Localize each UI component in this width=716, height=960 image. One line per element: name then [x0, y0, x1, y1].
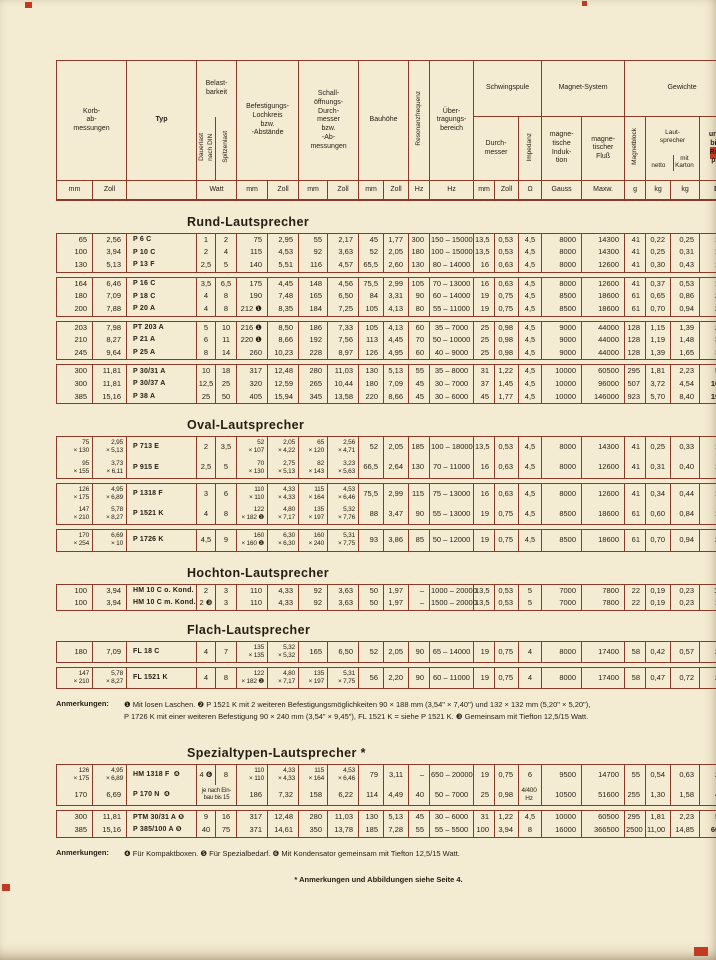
- table-cell: –: [409, 597, 430, 610]
- print-mark: [25, 2, 32, 8]
- table-cell: 17400: [582, 668, 625, 689]
- table-cell: 385: [57, 391, 93, 404]
- table-cell: 116: [299, 259, 328, 272]
- table-cell: 4,5: [519, 378, 542, 391]
- table-cell: 1,22: [495, 811, 519, 824]
- table-cell: 55: [409, 365, 430, 378]
- table-cell: 4,45: [384, 334, 409, 347]
- table-cell: 18600: [582, 303, 625, 316]
- cell-typ: P 1521 K: [127, 504, 197, 525]
- table-cell: 3,63: [328, 584, 359, 597]
- spec-rows-group: 652,56P 6 C12752,95552,17451,77300150 – …: [56, 233, 716, 273]
- table-cell: 110 × 110: [237, 764, 268, 785]
- table-cell: 8: [197, 347, 216, 360]
- table-cell: 0,60: [646, 504, 671, 525]
- table-cell: –: [409, 764, 430, 785]
- unit-cell: Hz: [409, 181, 430, 200]
- table-row: 1305,13P 13 F2,551405,511164,5765,52,601…: [57, 259, 716, 272]
- col-header-impedanz: Impedanz: [519, 117, 542, 181]
- table-cell: 2,56 × 4,71: [328, 437, 359, 458]
- table-cell: 16: [474, 483, 495, 504]
- table-cell: 18600: [582, 530, 625, 551]
- cell-typ: PT 203 A: [127, 321, 197, 334]
- table-cell: 16: [474, 458, 495, 479]
- table-cell: 22,—: [700, 303, 716, 316]
- table-cell: 190: [237, 290, 268, 303]
- spec-rows-group: 75 × 1302,95 × 5,13P 713 E23,552 × 1072,…: [56, 436, 716, 479]
- cell-typ: HM 1318 F ❹: [127, 764, 197, 785]
- table-cell: 300: [57, 378, 93, 391]
- spec-rows-group: 126 × 1754,95 × 6,89P 1318 F36110 × 1104…: [56, 483, 716, 526]
- table-cell: 8000: [542, 246, 582, 259]
- table-row: 2459,64P 25 A81426010,232288,971264,9560…: [57, 347, 716, 360]
- table-cell: 30 – 6000: [430, 811, 474, 824]
- table-cell: 19: [474, 303, 495, 316]
- unit-cell: Zoll: [384, 181, 409, 200]
- table-cell: 146000: [582, 391, 625, 404]
- table-cell: 150 – 15000: [430, 233, 474, 246]
- table-cell: 210: [57, 334, 93, 347]
- table-cell: 29,—: [700, 321, 716, 334]
- table-cell: 50: [359, 584, 384, 597]
- table-row: 1646,46P 16 C3,56,51754,451484,5675,52,9…: [57, 277, 716, 290]
- table-cell: 58,—: [700, 811, 716, 824]
- table-cell: 164: [57, 277, 93, 290]
- table-cell: 5,13: [384, 811, 409, 824]
- table-cell: 75: [216, 824, 237, 837]
- notes-label: Anmerkungen:: [56, 699, 124, 722]
- table-cell: 6: [197, 334, 216, 347]
- table-cell: 52: [359, 246, 384, 259]
- table-cell: 0,98: [495, 785, 519, 806]
- cell-typ: P 915 E: [127, 458, 197, 479]
- table-cell: 50 – 10000: [430, 334, 474, 347]
- table-row: 1807,09FL 18 C47135 × 1355,32 × 5,321656…: [57, 641, 716, 662]
- table-cell: 7,33: [328, 321, 359, 334]
- cell-typ: P 713 E: [127, 437, 197, 458]
- table-cell: 4,49: [384, 785, 409, 806]
- section-title: Rund-Lautsprecher: [187, 215, 701, 229]
- table-cell: 507: [625, 378, 646, 391]
- table-cell: 22: [625, 597, 646, 610]
- table-cell: 19,—: [700, 504, 716, 525]
- table-cell: 19: [474, 641, 495, 662]
- cell-typ: P 25 A: [127, 347, 197, 360]
- table-cell: 14300: [582, 233, 625, 246]
- table-cell: 195,—: [700, 391, 716, 404]
- table-cell: 4 ❻: [197, 764, 216, 785]
- table-cell: 4,45: [268, 277, 299, 290]
- table-cell: 3,94: [495, 824, 519, 837]
- table-cell: 4,5: [519, 391, 542, 404]
- table-cell: 245: [57, 347, 93, 360]
- table-cell: 65 – 14000: [430, 641, 474, 662]
- table-cell: 220: [359, 391, 384, 404]
- table-cell: 25: [474, 321, 495, 334]
- table-row: 38515,16P 385/100 A ❺407537114,6135013,7…: [57, 824, 716, 837]
- table-cell: 180: [57, 641, 93, 662]
- table-cell: 180: [359, 378, 384, 391]
- table-cell: 228: [299, 347, 328, 360]
- table-cell: 6,5: [216, 277, 237, 290]
- table-cell: 14,61: [268, 824, 299, 837]
- table-cell: 55: [409, 824, 430, 837]
- table-cell: 70 × 130: [237, 458, 268, 479]
- table-cell: 0,42: [646, 641, 671, 662]
- notes-text: ❹ Für Kompaktboxen. ❺ Für Spezialbedarf.…: [124, 848, 460, 859]
- table-cell: 12,5: [197, 378, 216, 391]
- col-header-induktion: magne- tische Induk- tion: [542, 117, 582, 181]
- table-cell: 0,53: [495, 233, 519, 246]
- table-cell: 3,63: [328, 597, 359, 610]
- table-cell: 2,23: [671, 811, 700, 824]
- table-cell: 4: [197, 504, 216, 525]
- table-cell: 0,19: [646, 597, 671, 610]
- table-cell: 4,53 × 6,46: [328, 764, 359, 785]
- table-cell: 5: [216, 458, 237, 479]
- table-cell: 50: [216, 391, 237, 404]
- table-cell: 41: [625, 437, 646, 458]
- table-cell: 55 – 11000: [430, 303, 474, 316]
- table-cell: 295: [625, 811, 646, 824]
- table-cell: 0,53: [495, 246, 519, 259]
- table-cell: 11,81: [93, 378, 127, 391]
- table-cell: 1: [197, 233, 216, 246]
- table-cell: 4: [197, 641, 216, 662]
- table-cell: 11,81: [93, 811, 127, 824]
- table-cell: 300: [57, 811, 93, 824]
- table-cell: 126: [359, 347, 384, 360]
- table-cell: 100 – 15000: [430, 246, 474, 259]
- table-cell: 1,65: [671, 347, 700, 360]
- unit-cell: Maxw.: [582, 181, 625, 200]
- col-header-netto: netto: [650, 162, 666, 170]
- table-cell: 185: [359, 824, 384, 837]
- table-row: 38515,16P 38 A255040515,9434513,582208,6…: [57, 391, 716, 404]
- col-header-uebertragungsbereich: Über- tragungs- bereich: [430, 61, 474, 181]
- table-cell: 2,95: [268, 233, 299, 246]
- table-cell: 12600: [582, 277, 625, 290]
- table-cell: 0,25: [646, 246, 671, 259]
- table-cell: 60 – 11000: [430, 668, 474, 689]
- table-cell: 2,05 × 4,22: [268, 437, 299, 458]
- cell-typ: P 10 C: [127, 246, 197, 259]
- table-cell: 0,94: [671, 530, 700, 551]
- table-cell: 2: [197, 584, 216, 597]
- table-cell: 0,75: [495, 290, 519, 303]
- col-header-befestigung: Befestigungs- Lochkreis bzw. -Abstände: [237, 61, 299, 181]
- table-cell: 61: [625, 290, 646, 303]
- table-cell: 90: [409, 504, 430, 525]
- table-cell: 51,—: [700, 365, 716, 378]
- vertical-label: Resonanzfrequenz: [415, 91, 424, 146]
- table-cell: 17400: [582, 641, 625, 662]
- table-cell: 8: [216, 290, 237, 303]
- section-title: Oval-Lautsprecher: [187, 418, 701, 432]
- table-cell: 65 × 120: [299, 437, 328, 458]
- table-cell: 8000: [542, 233, 582, 246]
- table-cell: 14300: [582, 246, 625, 259]
- table-cell: 92: [299, 246, 328, 259]
- table-cell: 105: [409, 277, 430, 290]
- table-cell: 165: [299, 290, 328, 303]
- table-cell: 110: [237, 584, 268, 597]
- table-cell: 25: [474, 334, 495, 347]
- table-cell: 41: [625, 246, 646, 259]
- table-cell: 10500: [542, 785, 582, 806]
- table-cell: 2: [197, 246, 216, 259]
- table-cell: 184: [299, 303, 328, 316]
- cell-typ: P 1318 F: [127, 483, 197, 504]
- table-cell: 260: [237, 347, 268, 360]
- table-cell: 3,94: [93, 597, 127, 610]
- table-cell: 10,50: [700, 584, 716, 597]
- table-cell: 0,75: [495, 668, 519, 689]
- table-cell: 95 × 155: [57, 458, 93, 479]
- table-cell: 7,48: [268, 290, 299, 303]
- table-cell: 0,25: [671, 233, 700, 246]
- table-cell: 16: [474, 277, 495, 290]
- table-cell: 7,25: [328, 303, 359, 316]
- table-cell: 6,50: [328, 290, 359, 303]
- table-cell: 25: [474, 785, 495, 806]
- notes-bottom: Anmerkungen: ❹ Für Kompaktboxen. ❺ Für S…: [56, 848, 701, 859]
- table-cell: 2,56: [93, 233, 127, 246]
- cell-typ: FL 18 C: [127, 641, 197, 662]
- table-cell: 100 – 18000: [430, 437, 474, 458]
- table-cell: 13,78: [328, 824, 359, 837]
- table-cell: 5: [216, 259, 237, 272]
- table-row: 30011,81P 30/37 A12,52532012,5926510,441…: [57, 378, 716, 391]
- unit-cell-dm: DM: [700, 181, 716, 200]
- table-cell: 23,—: [700, 530, 716, 551]
- table-cell: 0,72: [671, 668, 700, 689]
- table-cell: 2,23: [671, 365, 700, 378]
- table-cell: 4,5: [519, 347, 542, 360]
- table-cell: 16000: [542, 824, 582, 837]
- table-row: 126 × 1754,95 × 6,89P 1318 F36110 × 1104…: [57, 483, 716, 504]
- table-cell: 60: [409, 321, 430, 334]
- table-cell: 7000: [542, 584, 582, 597]
- table-cell: 3,72: [646, 378, 671, 391]
- table-cell: 130: [359, 365, 384, 378]
- table-cell: 52: [359, 641, 384, 662]
- table-cell: 15,94: [268, 391, 299, 404]
- table-cell: 5,32 × 7,76: [328, 504, 359, 525]
- table-cell: 58: [625, 641, 646, 662]
- table-cell: 2,64: [384, 458, 409, 479]
- table-cell: 7: [216, 641, 237, 662]
- table-cell: 15,—: [700, 437, 716, 458]
- table-cell: 9000: [542, 321, 582, 334]
- table-cell: 115: [409, 483, 430, 504]
- table-cell: 2500: [625, 824, 646, 837]
- table-cell: 280: [299, 365, 328, 378]
- table-cell: 11,00: [646, 824, 671, 837]
- table-cell: 19: [474, 504, 495, 525]
- table-cell: 180: [409, 246, 430, 259]
- table-cell: 2,75 × 5,13: [268, 458, 299, 479]
- table-cell: 9000: [542, 334, 582, 347]
- table-cell: 0,57: [671, 641, 700, 662]
- table-cell: 4,5: [519, 483, 542, 504]
- table-cell: 12600: [582, 458, 625, 479]
- table-cell: 8,66: [384, 391, 409, 404]
- table-cell: 1,39: [671, 321, 700, 334]
- unit-cell: Zoll: [268, 181, 299, 200]
- table-cell: 10000: [542, 365, 582, 378]
- table-cell: 75,5: [359, 483, 384, 504]
- table-cell: 8000: [542, 259, 582, 272]
- unit-cell: mm: [57, 181, 93, 200]
- table-cell: 158: [299, 785, 328, 806]
- table-row: 30011,81PTM 30/31 A ❺91631712,4828011,03…: [57, 811, 716, 824]
- table-cell: 4: [216, 246, 237, 259]
- table-cell: 20,—: [700, 764, 716, 785]
- table-cell: 37: [474, 378, 495, 391]
- table-cell: 3,94: [93, 584, 127, 597]
- table-cell: 10,44: [328, 378, 359, 391]
- table-cell: 2: [197, 437, 216, 458]
- table-cell: 4,5: [519, 321, 542, 334]
- table-cell: 1,19: [646, 334, 671, 347]
- table-cell: 13,5: [474, 246, 495, 259]
- table-cell: 15,—: [700, 246, 716, 259]
- table-cell: 216 ❶: [237, 321, 268, 334]
- table-cell: 19: [474, 290, 495, 303]
- table-cell: 185: [409, 437, 430, 458]
- table-cell: 11,03: [328, 365, 359, 378]
- table-cell: 80 – 14000: [430, 259, 474, 272]
- table-cell: 13,58: [328, 391, 359, 404]
- table-row: 170 × 2546,69 × 10P 1726 K4,59160 × 160 …: [57, 530, 716, 551]
- table-cell: 4,5: [197, 530, 216, 551]
- table-cell: 4: [197, 668, 216, 689]
- table-cell: 4,33 × 4,33: [268, 764, 299, 785]
- col-header-spitzenlast: Spitzenlast: [216, 117, 237, 181]
- table-cell: 135 × 197: [299, 504, 328, 525]
- table-cell: 31: [474, 365, 495, 378]
- table-row: 147 × 2105,78 × 8,27FL 1521 K48122 × 182…: [57, 668, 716, 689]
- section-rund-lautsprecher: Rund-Lautsprecher652,56P 6 C12752,95552,…: [56, 215, 701, 405]
- table-row: 1003,94HM 10 C o. Kond.231104,33923,6350…: [57, 584, 716, 597]
- table-cell: 45: [474, 391, 495, 404]
- table-cell: 115 × 164: [299, 483, 328, 504]
- table-cell: 75 × 130: [57, 437, 93, 458]
- table-cell: 8,50: [268, 321, 299, 334]
- table-cell: 84: [359, 290, 384, 303]
- table-cell: 6,30 × 6,30: [268, 530, 299, 551]
- table-cell: 8,35: [268, 303, 299, 316]
- table-cell: 0,94: [671, 303, 700, 316]
- table-cell: 4,80 × 7,17: [268, 504, 299, 525]
- table-cell: 22,—: [700, 641, 716, 662]
- table-cell: 16: [216, 811, 237, 824]
- table-cell: 1,97: [384, 584, 409, 597]
- table-cell: 0,63: [671, 764, 700, 785]
- table-cell: 41: [625, 483, 646, 504]
- table-cell: 10000: [542, 391, 582, 404]
- spec-rows-group: 126 × 1754,95 × 6,89HM 1318 F ❹4 ❻8110 ×…: [56, 764, 716, 807]
- table-cell: 3,86: [384, 530, 409, 551]
- table-cell: 41: [625, 277, 646, 290]
- table-cell: 2,99: [384, 277, 409, 290]
- table-cell: 6: [519, 764, 542, 785]
- table-cell: 3: [216, 597, 237, 610]
- table-cell: 51600: [582, 785, 625, 806]
- table-cell: 0,53: [495, 437, 519, 458]
- print-mark: [582, 1, 587, 6]
- table-cell: 34,—: [700, 347, 716, 360]
- table-row: 1807,09P 18 C481907,481656,50843,319060 …: [57, 290, 716, 303]
- table-cell: 12,48: [268, 365, 299, 378]
- table-cell: 7,32: [268, 785, 299, 806]
- table-cell: 12,—: [700, 597, 716, 610]
- table-cell: 130: [409, 259, 430, 272]
- table-cell: 0,98: [495, 321, 519, 334]
- unit-cell: Zoll: [93, 181, 127, 200]
- table-cell: 186: [299, 321, 328, 334]
- table-cell: 7,28: [384, 824, 409, 837]
- table-cell: 114: [359, 785, 384, 806]
- table-cell: 3,73 × 6,11: [93, 458, 127, 479]
- col-header-fluss: magne- tischer Fluß: [582, 117, 625, 181]
- table-cell: 56: [359, 668, 384, 689]
- table-cell: 9,64: [93, 347, 127, 360]
- table-cell: 70 – 11000: [430, 458, 474, 479]
- table-cell: 5,51: [268, 259, 299, 272]
- table-cell: 3,94: [93, 246, 127, 259]
- col-header-typ: Typ: [127, 61, 197, 181]
- table-cell: 6,22: [328, 785, 359, 806]
- table-cell: 44000: [582, 321, 625, 334]
- table-cell: 0,75: [495, 764, 519, 785]
- units-row: mm Zoll Watt mm Zoll mm Zoll mm Zoll Hz …: [57, 181, 716, 200]
- table-cell: 2,5: [197, 458, 216, 479]
- table-cell: 5,13: [93, 259, 127, 272]
- cell-typ: FL 1521 K: [127, 668, 197, 689]
- table-row: 2007,88P 20 A48212 ❶8,351847,251054,1380…: [57, 303, 716, 316]
- section-oval-lautsprecher: Oval-Lautsprecher75 × 1302,95 × 5,13P 71…: [56, 418, 701, 551]
- table-cell: 0,47: [646, 668, 671, 689]
- unit-cell: Hz: [430, 181, 474, 200]
- spec-table-header: Korb- ab- messungen Typ Belast- barkeit …: [56, 60, 716, 201]
- unit-cell: kg: [646, 181, 671, 200]
- table-cell: 147 × 210: [57, 668, 93, 689]
- table-cell: 18: [216, 365, 237, 378]
- table-cell: 8,40: [671, 391, 700, 404]
- table-cell: 1,30: [646, 785, 671, 806]
- table-cell: 30 – 6000: [430, 391, 474, 404]
- table-cell: 3,5: [197, 277, 216, 290]
- table-cell: 8000: [542, 668, 582, 689]
- section-title: Hochton-Lautsprecher: [187, 566, 701, 580]
- table-cell: 2,05: [384, 437, 409, 458]
- table-cell: 8000: [542, 641, 582, 662]
- table-cell: 9000: [542, 347, 582, 360]
- cell-typ: P 30/31 A: [127, 365, 197, 378]
- table-cell: 1,22: [495, 365, 519, 378]
- unit-cell: Zoll: [328, 181, 359, 200]
- table-cell: 2,05: [384, 246, 409, 259]
- table-cell: 110: [237, 597, 268, 610]
- table-cell: 385: [57, 824, 93, 837]
- table-cell: 0,33: [671, 437, 700, 458]
- table-cell: 44000: [582, 347, 625, 360]
- spec-rows-group: 30011,81PTM 30/31 A ❺91631712,4828011,03…: [56, 810, 716, 837]
- table-cell: 130: [409, 458, 430, 479]
- table-cell: 4,53: [268, 246, 299, 259]
